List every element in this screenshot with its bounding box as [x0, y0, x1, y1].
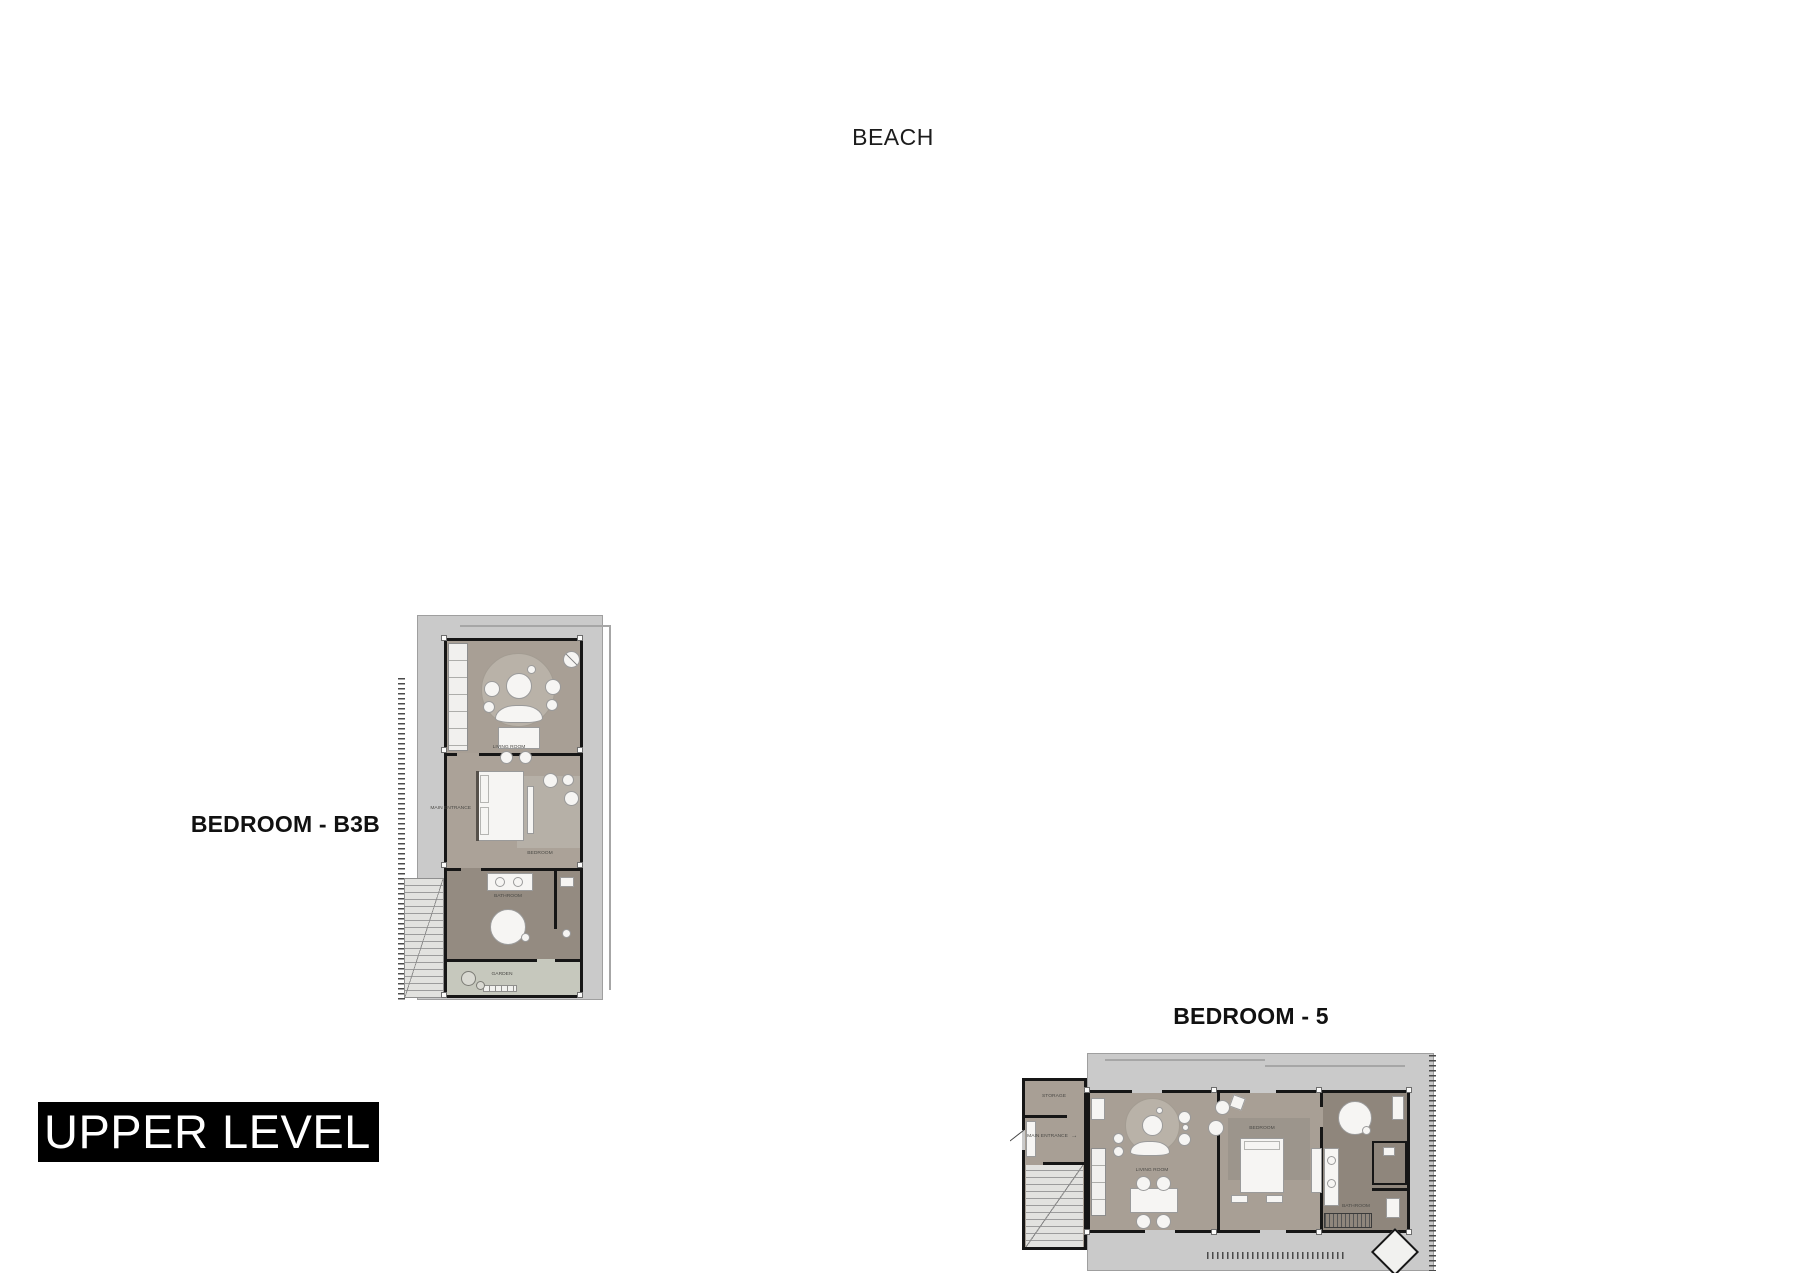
plant	[476, 981, 485, 990]
living-room-label: LIVING ROOM	[1127, 1168, 1176, 1174]
column	[1084, 1087, 1090, 1093]
storage-label: STORAGE	[1034, 1094, 1075, 1100]
dining-chair	[1156, 1214, 1171, 1229]
pouf	[1113, 1146, 1124, 1157]
living-room-label: LIVING ROOM	[485, 745, 533, 751]
column	[577, 635, 583, 641]
bedroom-label: BEDROOM	[520, 851, 561, 857]
basin	[495, 877, 505, 887]
column	[1211, 1087, 1217, 1093]
floor-plan-page: { "page": { "beach_label": "BEACH", "lev…	[0, 0, 1800, 1273]
column	[1316, 1229, 1322, 1235]
stool	[1362, 1126, 1371, 1135]
sofa	[1130, 1141, 1170, 1156]
wardrobe-hatch	[1324, 1213, 1372, 1228]
bench	[1266, 1195, 1283, 1203]
building-b3b: LIVING ROOM BEDROOM BATHROOM GARDEN	[444, 638, 583, 998]
pillow	[1244, 1141, 1280, 1150]
stepping-stones	[483, 985, 517, 992]
washer	[1386, 1198, 1400, 1218]
beach-label: BEACH	[780, 124, 1006, 151]
bedroom-label: BEDROOM	[1237, 1126, 1286, 1132]
dining-chair	[1136, 1176, 1151, 1191]
level-title: UPPER LEVEL	[38, 1102, 379, 1162]
window-gap	[1145, 1230, 1175, 1233]
window-gap	[1260, 1230, 1286, 1233]
round-table	[1142, 1115, 1163, 1136]
column	[441, 862, 447, 868]
door-gap	[461, 868, 481, 871]
toilet	[1383, 1147, 1395, 1156]
wall	[1025, 1115, 1067, 1118]
armchair	[1208, 1120, 1224, 1136]
garden-label: GARDEN	[482, 972, 523, 978]
column	[1316, 1087, 1322, 1093]
door-gap	[1320, 1107, 1323, 1127]
roof-edge	[460, 625, 611, 627]
side-table	[1156, 1107, 1163, 1114]
roof-edge	[1265, 1065, 1405, 1067]
kitchen-counter	[1091, 1148, 1106, 1216]
column	[1084, 1229, 1090, 1235]
side-table	[1182, 1124, 1189, 1131]
column	[1211, 1229, 1217, 1235]
window-gap	[1132, 1090, 1162, 1093]
column	[577, 747, 583, 753]
column	[577, 992, 583, 998]
bathroom-label: BATHROOM	[1331, 1204, 1380, 1210]
plant	[461, 971, 476, 986]
kitchen-counter	[448, 643, 468, 751]
stairs	[1026, 1165, 1083, 1247]
bathroom-label: BATHROOM	[484, 894, 532, 900]
plan-b3b-title: BEDROOM - B3B	[180, 811, 380, 838]
wall	[554, 871, 557, 929]
service-block: STORAGE MAIN ENTRANCE →	[1022, 1078, 1087, 1250]
armchair	[545, 679, 561, 695]
plan-b5-title: BEDROOM - 5	[1141, 1003, 1361, 1030]
stairs	[404, 878, 444, 998]
door-gap	[537, 959, 555, 962]
door-gap	[457, 753, 479, 756]
round-table	[506, 673, 532, 699]
column	[577, 862, 583, 868]
pillow	[480, 775, 489, 803]
drain	[562, 929, 571, 938]
shelf	[1392, 1096, 1404, 1120]
dining-chair	[1156, 1176, 1171, 1191]
roof-edge	[1105, 1059, 1265, 1061]
armchair	[564, 791, 579, 806]
side-table	[562, 774, 574, 786]
column	[441, 747, 447, 753]
roof-edge	[609, 627, 611, 990]
armchair	[1178, 1133, 1191, 1146]
cabinet	[1091, 1098, 1105, 1120]
deck-edge-ticks	[1429, 1055, 1436, 1271]
deck-edge-ticks	[1207, 1252, 1345, 1259]
building-b5: LIVING ROOM BEDROOM BATHROOM	[1087, 1090, 1410, 1233]
main-entrance-label: MAIN ENTRANCE	[430, 806, 469, 812]
window-gap	[1250, 1090, 1276, 1093]
dining-table	[1130, 1188, 1178, 1213]
armchair	[1229, 1094, 1246, 1111]
dining-chair	[1136, 1214, 1151, 1229]
armchair	[546, 699, 558, 711]
bench	[527, 786, 534, 834]
armchair	[543, 773, 558, 788]
armchair	[483, 701, 495, 713]
wall	[447, 959, 580, 962]
entrance-arrow-icon: →	[1068, 1133, 1079, 1139]
basin	[513, 877, 523, 887]
toilet	[560, 877, 574, 887]
ceiling-fan-icon	[563, 651, 580, 668]
basin	[1327, 1179, 1336, 1188]
pouf	[500, 751, 513, 764]
sofa	[495, 705, 543, 723]
bench	[1231, 1195, 1248, 1203]
floor-plan-b5: STORAGE MAIN ENTRANCE → LIVING ROOM	[1010, 1053, 1450, 1273]
column	[441, 635, 447, 641]
column	[1406, 1087, 1412, 1093]
pillow	[480, 807, 489, 835]
headboard	[476, 771, 479, 841]
armchair	[1215, 1100, 1230, 1115]
armchair	[1178, 1111, 1191, 1124]
double-vanity	[487, 873, 533, 891]
wall	[1372, 1188, 1407, 1191]
main-entrance-label: MAIN ENTRANCE	[1027, 1134, 1065, 1140]
wardrobe	[1311, 1148, 1322, 1193]
armchair	[484, 681, 500, 697]
stool	[521, 933, 530, 942]
door-gap	[1022, 1130, 1025, 1150]
side-table	[527, 665, 536, 674]
column	[1406, 1229, 1412, 1235]
basin	[1327, 1156, 1336, 1165]
pouf	[519, 751, 532, 764]
pouf	[1113, 1133, 1124, 1144]
floor-plan-b3b: LIVING ROOM BEDROOM BATHROOM GARDEN MAIN…	[400, 610, 640, 1008]
column	[441, 992, 447, 998]
